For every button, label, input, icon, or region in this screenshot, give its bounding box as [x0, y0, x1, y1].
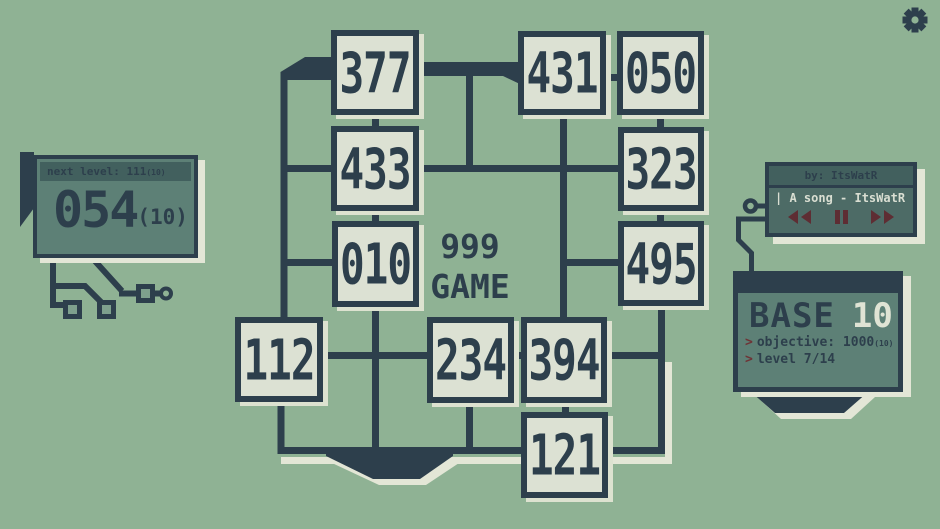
tile-431[interactable]: 431 — [518, 31, 606, 115]
rewind-icon — [787, 210, 812, 224]
fast-forward-button[interactable] — [870, 210, 895, 224]
score-row: 054 (10) — [40, 181, 191, 237]
music-body: | A song - ItsWatR — [769, 188, 913, 224]
base-title: BASE 10 — [738, 293, 898, 335]
settings-gear-icon[interactable] — [901, 6, 929, 34]
objective-text: objective: 1000 — [757, 335, 874, 350]
gear-icon — [901, 6, 929, 34]
game-title-line2: GAME — [414, 267, 526, 307]
score-base-subscript: (10) — [137, 202, 188, 232]
tile-234[interactable]: 234 — [427, 317, 514, 403]
fast-forward-icon — [870, 210, 895, 224]
music-author: by: ItsWatR — [769, 166, 913, 188]
level-prompt: > — [745, 352, 753, 367]
tile-121[interactable]: 121 — [521, 412, 608, 498]
music-controls — [769, 206, 913, 224]
base-panel: BASE 10 >objective: 1000(10) >level 7/14 — [733, 271, 903, 392]
music-player-panel: by: ItsWatR | A song - ItsWatR — [765, 162, 917, 237]
game-title: 999 GAME — [414, 227, 526, 307]
objective-base-subscript: (10) — [874, 339, 893, 348]
base-value: 10 — [852, 297, 893, 335]
tile-377[interactable]: 377 — [331, 30, 419, 115]
base-panel-topbar — [737, 275, 899, 293]
tile-112[interactable]: 112 — [235, 317, 323, 402]
score-value: 054 — [53, 183, 137, 237]
base-label: BASE — [749, 297, 835, 335]
tile-010[interactable]: 010 — [332, 221, 419, 307]
level-text: level 7/14 — [757, 352, 835, 367]
objective-prompt: > — [745, 335, 753, 350]
objective-line: >objective: 1000(10) — [738, 335, 898, 352]
game-title-line1: 999 — [414, 227, 526, 267]
pause-button[interactable] — [834, 210, 849, 224]
tile-323[interactable]: 323 — [618, 127, 704, 211]
tile-495[interactable]: 495 — [618, 221, 704, 306]
tile-050[interactable]: 050 — [617, 31, 704, 115]
tile-433[interactable]: 433 — [331, 126, 419, 211]
pause-icon — [834, 210, 849, 224]
song-title: | A song - ItsWatR — [769, 188, 913, 206]
next-level-header: next level: 111(10) — [40, 162, 191, 181]
tile-394[interactable]: 394 — [521, 317, 607, 403]
game-screen: 377431050433323010495112234394121 999 GA… — [0, 0, 940, 529]
next-level-label: next level: 111 — [47, 165, 146, 178]
level-line: >level 7/14 — [738, 352, 898, 368]
score-panel: next level: 111(10) 054 (10) — [33, 155, 198, 258]
next-level-base-subscript: (10) — [146, 168, 165, 177]
rewind-button[interactable] — [787, 210, 812, 224]
